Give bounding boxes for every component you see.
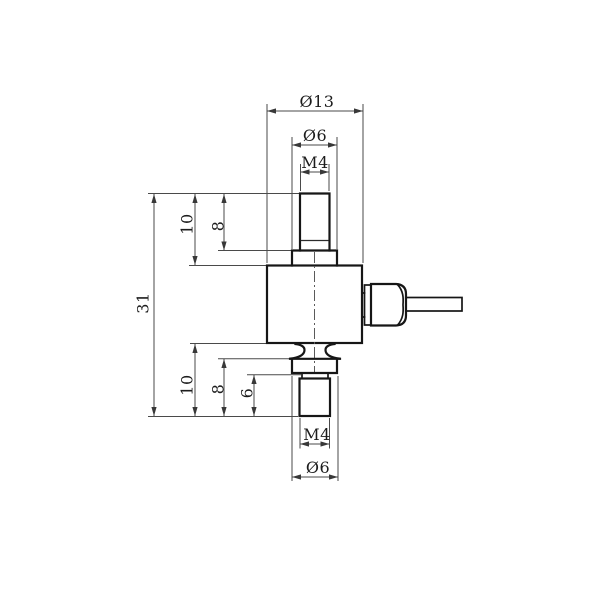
dim-top-thread: M4 <box>301 153 330 175</box>
drawing-canvas: Ø13 Ø6 M4 31 10 <box>0 0 600 600</box>
dim-top-thread-length: 8 <box>209 194 228 251</box>
technical-drawing: Ø13 Ø6 M4 31 10 <box>0 0 600 600</box>
dim-bottom-thread-length-label: 6 <box>238 388 257 399</box>
dim-top-boss-diameter: Ø6 <box>292 126 337 148</box>
dim-body-diameter: Ø13 <box>267 92 363 114</box>
dim-body-diameter-label: Ø13 <box>300 92 335 111</box>
bottom-stud <box>300 379 331 417</box>
dim-bottom-thread-label: M4 <box>303 425 331 444</box>
dim-top-thread-length-label: 8 <box>209 221 228 232</box>
cable <box>406 298 462 312</box>
dim-bottom-thread: M4 <box>300 425 331 447</box>
dim-bottom-boss-to-end: 8 <box>209 359 228 416</box>
top-stud <box>300 194 330 251</box>
part-outline <box>267 194 462 417</box>
dim-overall-height-label: 31 <box>134 292 153 313</box>
dim-bottom-boss-diameter: Ø6 <box>292 458 338 480</box>
dim-overall-height: 31 <box>134 194 157 416</box>
waist-left <box>291 344 305 359</box>
dim-bottom-boss-diameter-label: Ø6 <box>306 458 330 477</box>
gland-hex-face-line <box>398 285 404 326</box>
dim-top-thread-label: M4 <box>301 153 329 172</box>
dim-bottom-protrusion-label: 10 <box>178 374 197 395</box>
dim-bottom-protrusion: 10 <box>178 344 198 416</box>
dim-top-protrusion: 10 <box>178 194 198 265</box>
dim-bottom-thread-length: 6 <box>238 375 257 416</box>
dim-top-protrusion-label: 10 <box>178 213 197 234</box>
dim-bottom-boss-to-end-label: 8 <box>209 384 228 395</box>
dim-top-boss-diameter-label: Ø6 <box>303 126 327 145</box>
waist-right <box>326 344 340 359</box>
